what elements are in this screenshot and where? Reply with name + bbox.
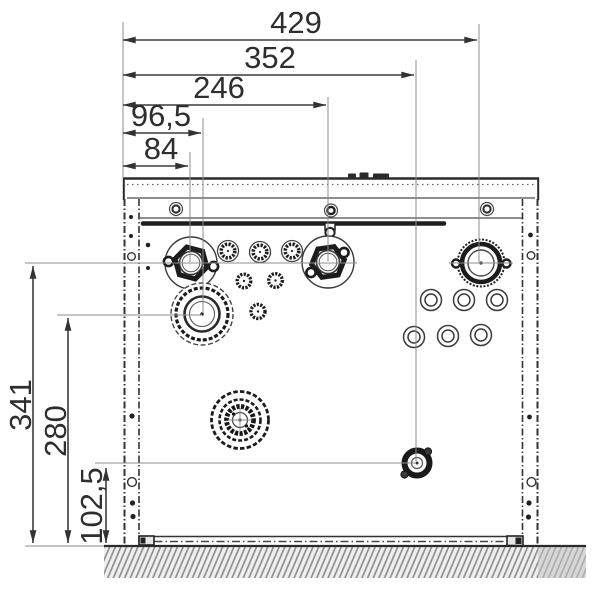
blank-port [269, 274, 283, 288]
ground-gray-right [538, 547, 586, 578]
dim-width-96-5: 96,5 [123, 98, 201, 133]
dim-height-280: 280 [38, 318, 73, 543]
foot-left [139, 536, 154, 545]
grommet [438, 326, 459, 347]
screw-icon [170, 203, 183, 216]
bolt-hole [527, 478, 536, 487]
connection-fittings [164, 236, 511, 478]
foot-right [507, 536, 523, 546]
blanked-ports [237, 274, 282, 319]
dimensions-left: 341 280 102,5 [3, 266, 109, 545]
ear-screw [339, 248, 348, 257]
bolt-dot [129, 234, 133, 238]
grommet [471, 325, 492, 346]
ear-screw [424, 448, 431, 455]
grommet-grid-right [404, 290, 508, 348]
bolt-hole [527, 252, 535, 260]
dim-value: 352 [244, 40, 296, 75]
clip [373, 174, 389, 180]
bolt-dot [528, 233, 533, 238]
bottom-band [139, 536, 523, 546]
screw-icon [481, 203, 494, 216]
bolt-dot [130, 514, 135, 519]
bolt-dot [129, 215, 133, 219]
bolt-hole [128, 253, 136, 261]
small-caps-row [218, 241, 303, 263]
bolt-dot [146, 266, 150, 270]
dim-value: 280 [38, 405, 73, 457]
bolt-hole [128, 478, 137, 487]
dimensions-top: 429 352 246 96,5 84 [123, 5, 477, 166]
drawing-canvas: 429 352 246 96,5 84 341 280 102, [0, 0, 600, 600]
right-frame-column [523, 199, 538, 546]
dim-width-total: 429 [123, 5, 477, 40]
left-frame-column [125, 199, 140, 546]
ear-screw [401, 471, 408, 478]
clip [360, 173, 369, 180]
grommet [404, 327, 425, 348]
bolt-dot [129, 413, 134, 418]
bolt-dot [526, 514, 531, 519]
dim-width-84: 84 [123, 131, 188, 166]
bolt-dot [526, 500, 531, 505]
ear-screw [306, 268, 315, 277]
dim-height-102-5: 102,5 [74, 467, 109, 545]
right-frame-bolts [526, 233, 536, 520]
dim-value: 96,5 [131, 98, 191, 133]
dim-value: 102,5 [74, 467, 109, 545]
bolt-dot [146, 243, 151, 248]
grommet [421, 290, 442, 311]
dim-width-352: 352 [123, 40, 414, 75]
dim-value: 84 [144, 131, 178, 166]
capped-port [282, 241, 303, 262]
panel-screws [170, 203, 494, 218]
capped-port [250, 242, 271, 263]
ear-screw [164, 257, 173, 266]
screw-icon [325, 204, 338, 217]
dim-value: 429 [270, 5, 322, 40]
capped-port [218, 241, 239, 262]
ground [104, 546, 586, 578]
blank-port [237, 274, 251, 288]
large-connection-bottom [212, 392, 269, 449]
slot-mark [232, 412, 235, 415]
large-flue-connection-left [171, 283, 233, 345]
ground-hatch-area [104, 547, 586, 578]
clip [348, 174, 356, 180]
dim-value: 246 [193, 70, 245, 105]
bolt-dot [130, 500, 135, 505]
hanging-bracket-tab [325, 223, 335, 237]
bolt-dot [527, 415, 532, 420]
blank-port [251, 305, 265, 319]
appliance-body [123, 173, 539, 547]
dim-height-341: 341 [3, 266, 38, 543]
grommet [454, 290, 475, 311]
dim-value: 341 [3, 379, 38, 431]
slot-mark [245, 424, 248, 427]
dimension-drawing: 429 352 246 96,5 84 341 280 102, [0, 0, 600, 600]
grommet [487, 290, 508, 311]
